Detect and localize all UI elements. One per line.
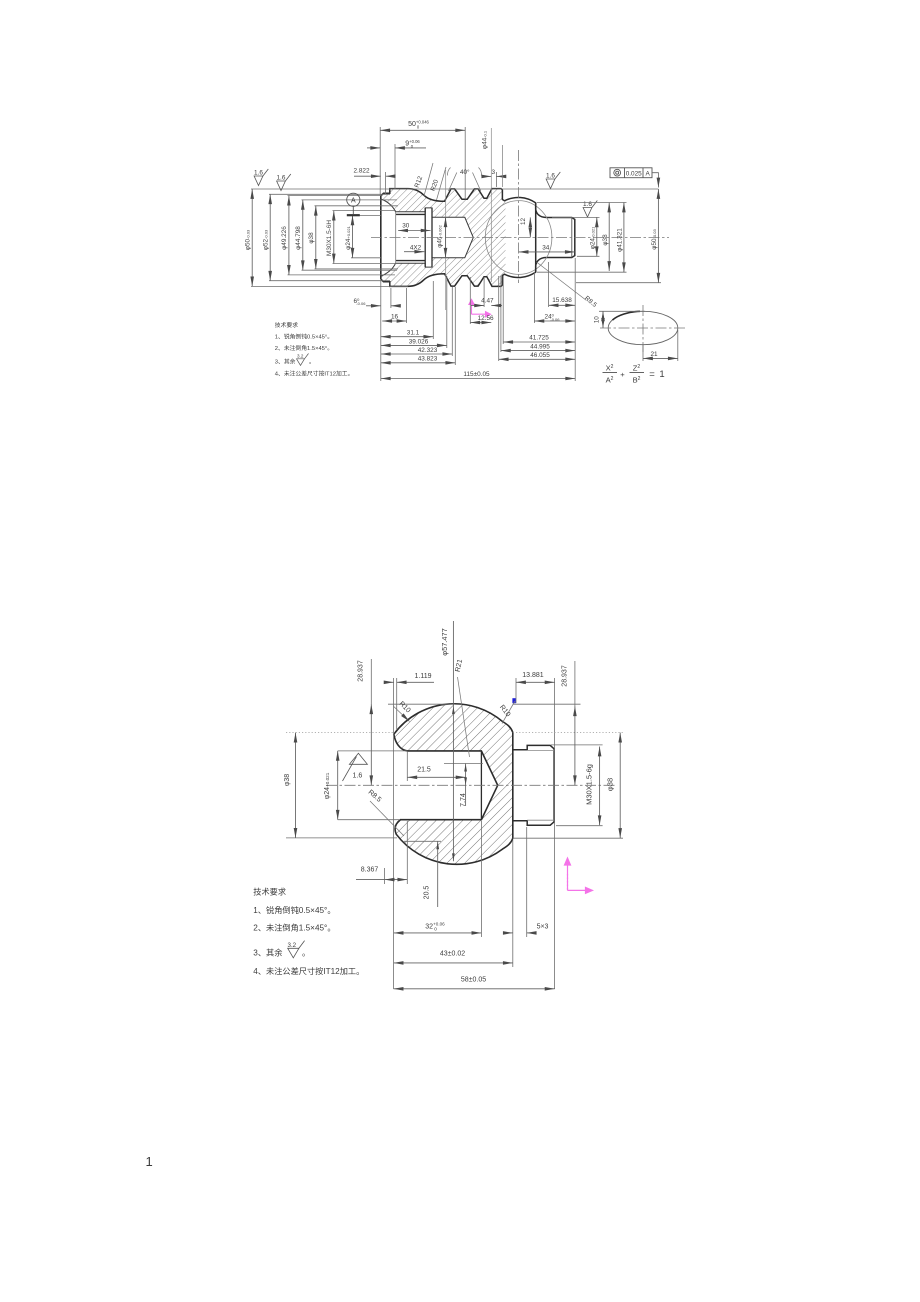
svg-text:φ38: φ38 <box>284 774 291 786</box>
svg-text:φ52-0.03: φ52-0.03 <box>263 229 270 250</box>
svg-text:21.5: 21.5 <box>417 767 431 774</box>
svg-text:φ50-0.03: φ50-0.03 <box>651 229 658 250</box>
svg-text:。: 。 <box>302 948 310 957</box>
svg-text:φ38: φ38 <box>602 234 609 246</box>
svg-text:φ46-0.062: φ46-0.062 <box>436 224 443 247</box>
svg-text:8.367: 8.367 <box>361 867 379 874</box>
svg-text:20.5: 20.5 <box>423 886 430 900</box>
svg-text:φ24+0.021: φ24+0.021 <box>345 225 352 249</box>
svg-text:5×3: 5×3 <box>537 923 549 930</box>
svg-text:1、锐角倒钝0.5×45°。: 1、锐角倒钝0.5×45°。 <box>275 333 333 341</box>
svg-text:42.323: 42.323 <box>418 347 438 354</box>
svg-text:1: 1 <box>659 369 664 380</box>
svg-text:4X2: 4X2 <box>410 245 422 252</box>
svg-text:16: 16 <box>391 314 399 321</box>
svg-text:φ24-0.021: φ24-0.021 <box>590 226 597 249</box>
svg-text:φ44.798: φ44.798 <box>295 226 302 250</box>
svg-text:A: A <box>645 170 650 177</box>
svg-text:1.6: 1.6 <box>353 773 363 780</box>
svg-text:13.881: 13.881 <box>522 672 544 679</box>
svg-text:21: 21 <box>650 351 658 358</box>
svg-text:58±0.05: 58±0.05 <box>461 977 486 984</box>
svg-text:φ50-0.03: φ50-0.03 <box>245 229 252 250</box>
svg-text:3: 3 <box>492 169 496 176</box>
svg-text:1.6: 1.6 <box>583 201 592 208</box>
svg-text:34: 34 <box>542 244 550 251</box>
svg-text:28.937: 28.937 <box>358 660 365 682</box>
svg-text:+: + <box>620 370 625 379</box>
svg-text:φ57.477: φ57.477 <box>440 628 449 655</box>
svg-text:3、其余: 3、其余 <box>253 947 282 957</box>
svg-text:1.6: 1.6 <box>546 173 555 180</box>
svg-text:4、未注公差尺寸按IT12加工。: 4、未注公差尺寸按IT12加工。 <box>253 966 364 976</box>
svg-text:12.56: 12.56 <box>478 315 494 322</box>
svg-text:43.823: 43.823 <box>418 356 438 363</box>
svg-text:28.937: 28.937 <box>561 665 568 687</box>
svg-text:。: 。 <box>309 360 315 366</box>
svg-text:4、未注公差尺寸按IT12加工。: 4、未注公差尺寸按IT12加工。 <box>275 370 354 378</box>
svg-text:1: 1 <box>146 1154 153 1169</box>
svg-text:30: 30 <box>402 223 410 230</box>
svg-text:φ38: φ38 <box>606 778 615 791</box>
svg-text:2、未注倒角1.5×45°。: 2、未注倒角1.5×45°。 <box>253 922 335 932</box>
svg-text:技术要求: 技术要求 <box>275 321 298 329</box>
svg-text:φ41.321: φ41.321 <box>616 228 623 252</box>
svg-text:1、锐角倒钝0.5×45°。: 1、锐角倒钝0.5×45°。 <box>253 905 335 915</box>
svg-text:15.638: 15.638 <box>552 297 572 304</box>
svg-text:A: A <box>351 197 356 204</box>
svg-text:1.119: 1.119 <box>415 673 432 680</box>
svg-text:技术要求: 技术要求 <box>253 887 286 897</box>
svg-text:115±0.05: 115±0.05 <box>463 371 490 378</box>
svg-text:M30X1.5-6H: M30X1.5-6H <box>326 220 333 256</box>
svg-text:44.995: 44.995 <box>530 343 550 350</box>
svg-text:46.055: 46.055 <box>530 352 550 359</box>
svg-text:4.47: 4.47 <box>481 297 494 304</box>
svg-text:φ44-0.1: φ44-0.1 <box>482 130 489 149</box>
svg-text:10: 10 <box>594 316 601 324</box>
svg-text:1.6: 1.6 <box>277 175 286 182</box>
svg-text:1.6: 1.6 <box>254 170 263 177</box>
svg-text:2、未注倒角1.5×45°。: 2、未注倒角1.5×45°。 <box>275 344 333 352</box>
svg-text:2.822: 2.822 <box>354 168 370 175</box>
svg-text:M30X1.5-6g: M30X1.5-6g <box>585 764 594 805</box>
svg-text:3.2: 3.2 <box>297 354 304 359</box>
svg-text:3、其余: 3、其余 <box>275 358 296 366</box>
svg-text:39.026: 39.026 <box>409 338 429 345</box>
svg-text:40°: 40° <box>460 168 470 176</box>
svg-text:=: = <box>649 369 655 380</box>
svg-text:41.725: 41.725 <box>529 334 549 341</box>
svg-text:φ38: φ38 <box>308 232 315 244</box>
svg-text:φ24+0.021: φ24+0.021 <box>324 772 331 799</box>
svg-text:φ49.226: φ49.226 <box>281 226 288 250</box>
svg-text:12: 12 <box>520 218 527 226</box>
svg-text:0.025: 0.025 <box>626 170 642 177</box>
svg-text:43±0.02: 43±0.02 <box>440 951 465 958</box>
svg-text:7.74: 7.74 <box>460 793 467 807</box>
svg-text:31.1: 31.1 <box>407 329 420 336</box>
svg-text:3.2: 3.2 <box>288 942 297 949</box>
